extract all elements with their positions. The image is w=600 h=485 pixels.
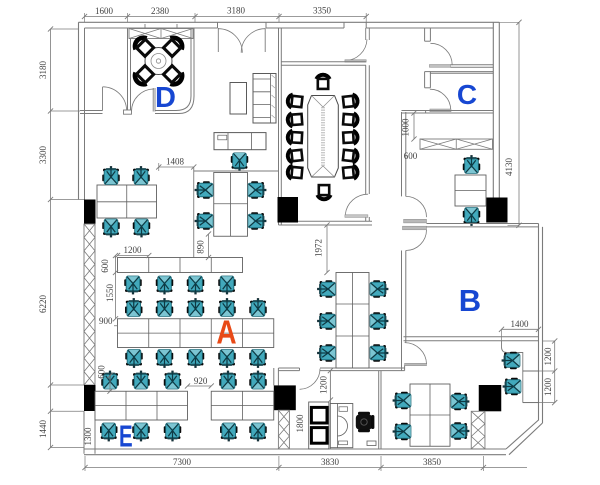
svg-text:E: E <box>119 418 133 453</box>
svg-text:1200: 1200 <box>124 245 143 255</box>
svg-text:1600: 1600 <box>95 6 114 16</box>
svg-text:900: 900 <box>99 316 113 326</box>
svg-text:1800: 1800 <box>295 414 305 433</box>
svg-text:7300: 7300 <box>173 457 192 467</box>
svg-text:3350: 3350 <box>313 6 332 16</box>
svg-text:2380: 2380 <box>151 6 170 16</box>
svg-text:3180: 3180 <box>227 6 246 16</box>
svg-text:1550: 1550 <box>105 284 115 303</box>
svg-text:1400: 1400 <box>511 319 530 329</box>
svg-text:C: C <box>457 79 477 110</box>
svg-text:1200: 1200 <box>543 378 553 397</box>
svg-text:1408: 1408 <box>166 157 185 167</box>
svg-text:600: 600 <box>404 151 418 161</box>
svg-text:A: A <box>216 314 236 351</box>
svg-text:920: 920 <box>194 376 208 386</box>
svg-text:4130: 4130 <box>504 158 514 177</box>
svg-text:3300: 3300 <box>38 146 48 165</box>
svg-text:3850: 3850 <box>423 457 442 467</box>
svg-text:3180: 3180 <box>38 61 48 80</box>
svg-text:1440: 1440 <box>38 420 48 439</box>
svg-text:3830: 3830 <box>321 457 340 467</box>
svg-text:1200: 1200 <box>319 376 329 395</box>
svg-text:1972: 1972 <box>314 239 324 257</box>
svg-text:600: 600 <box>96 365 106 379</box>
svg-text:600: 600 <box>100 259 110 273</box>
svg-text:6220: 6220 <box>38 295 48 314</box>
svg-text:890: 890 <box>196 240 206 254</box>
svg-text:D: D <box>155 82 176 114</box>
svg-text:1300: 1300 <box>83 427 93 446</box>
svg-text:B: B <box>459 283 481 318</box>
svg-text:1200: 1200 <box>543 347 553 366</box>
svg-text:1000: 1000 <box>401 118 411 137</box>
